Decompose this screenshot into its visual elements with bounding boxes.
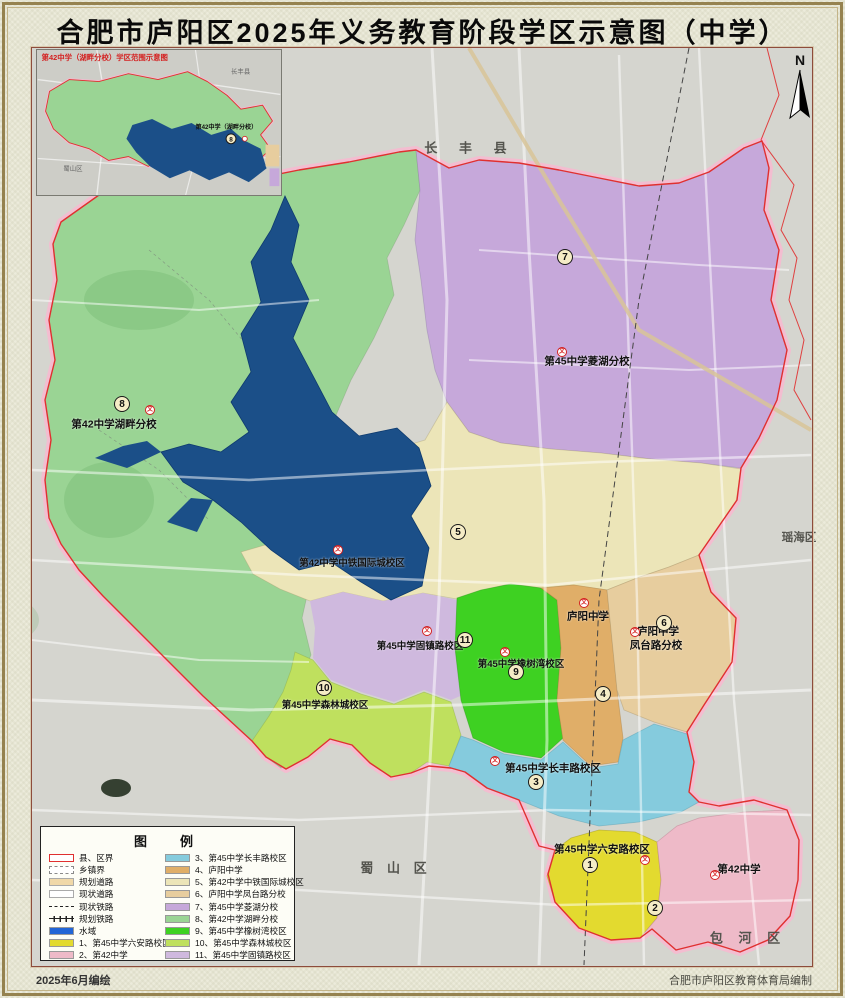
school-label-luyang: 庐阳中学 bbox=[567, 609, 609, 624]
legend: 图 例 县、区界 乡镇界 规划道路 现状道路 bbox=[40, 826, 295, 961]
legend-item-2: 2、第42中学 bbox=[49, 951, 157, 961]
footer-date: 2025年6月编绘 bbox=[36, 972, 111, 988]
region-number-5: 5 bbox=[450, 524, 466, 540]
north-arrow-icon bbox=[787, 68, 813, 120]
inset-edge-region bbox=[266, 145, 280, 167]
district-label-yaohaiqu: 瑶海区 bbox=[782, 529, 817, 545]
legend-item-7: 7、第45中学菱湖分校 bbox=[165, 902, 295, 912]
region-number-2: 2 bbox=[647, 900, 663, 916]
region-1-swatch bbox=[49, 939, 74, 947]
water-swatch bbox=[49, 927, 74, 935]
region-10-swatch bbox=[165, 939, 190, 947]
school-marker: 文 bbox=[640, 855, 650, 865]
school-marker: 文 bbox=[557, 347, 567, 357]
inset-school-marker bbox=[242, 136, 247, 141]
school-label-fengtailu-2: 凤台路分校 bbox=[630, 638, 683, 653]
inset-number: 8 bbox=[229, 136, 233, 143]
footer-publisher: 合肥市庐阳区教育体育局编制 bbox=[669, 972, 812, 988]
planned-road-swatch bbox=[49, 878, 74, 886]
district-label-baohequ: 包 河 区 bbox=[710, 928, 786, 947]
legend-item-water: 水域 bbox=[49, 926, 157, 936]
region-7-linghu bbox=[415, 141, 787, 468]
region-5-swatch bbox=[165, 878, 190, 886]
legend-column-left: 县、区界 乡镇界 规划道路 现状道路 现状铁路 bbox=[49, 853, 157, 960]
school-marker: 文 bbox=[422, 626, 432, 636]
school-label-linghu: 第45中学菱湖分校 bbox=[544, 354, 629, 369]
region-number-3: 3 bbox=[528, 774, 544, 790]
school-marker: 文 bbox=[500, 647, 510, 657]
forest-texture bbox=[84, 270, 194, 330]
legend-item-10: 10、第45中学森林城校区 bbox=[165, 938, 295, 948]
region-number-9: 9 bbox=[508, 664, 524, 680]
page: 合肥市庐阳区2025年义务教育阶段学区示意图（中学） bbox=[0, 0, 845, 998]
region-6-swatch bbox=[165, 890, 190, 898]
region-number-6: 6 bbox=[656, 615, 672, 631]
school-label-hupan: 第42中学湖畔分校 bbox=[71, 417, 156, 432]
legend-item-8: 8、第42中学湖畔分校 bbox=[165, 914, 295, 924]
region-4-swatch bbox=[165, 866, 190, 874]
planned-railway-swatch bbox=[49, 915, 74, 922]
county-boundary-swatch bbox=[49, 854, 74, 862]
school-marker: 文 bbox=[490, 756, 500, 766]
inset-edge-region bbox=[269, 168, 279, 186]
north-arrow: N bbox=[786, 52, 814, 122]
legend-title: 图 例 bbox=[49, 831, 288, 850]
legend-item-town-boundary: 乡镇界 bbox=[49, 865, 157, 875]
region-number-11: 11 bbox=[457, 632, 473, 648]
legend-item-3: 3、第45中学长丰路校区 bbox=[165, 853, 295, 863]
existing-railway-swatch bbox=[49, 906, 74, 907]
legend-item-4: 4、庐阳中学 bbox=[165, 865, 295, 875]
north-label: N bbox=[786, 52, 814, 68]
legend-item-planned-road: 规划道路 bbox=[49, 877, 157, 887]
legend-item-existing-railway: 现状铁路 bbox=[49, 902, 157, 912]
inset-map: 第42中学（湖畔分校）学区范围示意图 长丰县 蜀山区 第42中学（湖畔分校） 8 bbox=[36, 49, 282, 196]
school-marker: 文 bbox=[630, 627, 640, 637]
region-number-7: 7 bbox=[557, 249, 573, 265]
region-3-swatch bbox=[165, 854, 190, 862]
region-8-swatch bbox=[165, 915, 190, 923]
school-label-zhongtie: 第42中学中铁国际城校区 bbox=[299, 555, 405, 569]
school-marker: 文 bbox=[145, 405, 155, 415]
existing-road-swatch bbox=[49, 890, 74, 898]
region-number-10: 10 bbox=[316, 680, 332, 696]
region-number-1: 1 bbox=[582, 857, 598, 873]
school-marker: 文 bbox=[579, 598, 589, 608]
school-label-senlincheng: 第45中学森林城校区 bbox=[282, 697, 369, 711]
page-title: 合肥市庐阳区2025年义务教育阶段学区示意图（中学） bbox=[0, 11, 845, 50]
inset-district-changfeng: 长丰县 bbox=[231, 67, 251, 76]
inset-caption: 第42中学（湖畔分校）学区范围示意图 bbox=[42, 53, 168, 62]
region-2-swatch bbox=[49, 951, 74, 959]
school-label-guzhenlu: 第45中学固镇路校区 bbox=[377, 638, 464, 652]
legend-item-9: 9、第45中学橡树湾校区 bbox=[165, 926, 295, 936]
region-7-swatch bbox=[165, 903, 190, 911]
legend-item-11: 11、第45中学固镇路校区 bbox=[165, 951, 295, 961]
school-marker: 文 bbox=[333, 545, 343, 555]
region-11-swatch bbox=[165, 951, 190, 959]
school-label-no42: 第42中学 bbox=[717, 862, 760, 877]
legend-item-planned-railway: 规划铁路 bbox=[49, 914, 157, 924]
legend-item-5: 5、第42中学中铁国际城校区 bbox=[165, 877, 295, 887]
legend-item-6: 6、庐阳中学凤台路分校 bbox=[165, 890, 295, 900]
legend-item-existing-road: 现状道路 bbox=[49, 890, 157, 900]
region-number-8: 8 bbox=[114, 396, 130, 412]
legend-column-right: 3、第45中学长丰路校区 4、庐阳中学 5、第42中学中铁国际城校区 6、庐阳中… bbox=[165, 853, 295, 960]
inset-school-label: 第42中学（湖畔分校） bbox=[194, 123, 257, 131]
legend-item-county-boundary: 县、区界 bbox=[49, 853, 157, 863]
pond bbox=[101, 779, 131, 797]
school-label-changfenglu: 第45中学长丰路校区 bbox=[505, 761, 601, 776]
town-boundary-swatch bbox=[49, 866, 74, 874]
school-label-luanlu: 第45中学六安路校区 bbox=[554, 842, 650, 857]
district-label-shushanqu: 蜀 山 区 bbox=[360, 858, 431, 877]
school-marker: 文 bbox=[710, 870, 720, 880]
legend-item-1: 1、第45中学六安路校区 bbox=[49, 938, 157, 948]
region-9-swatch bbox=[165, 927, 190, 935]
district-label-changfengxian: 长 丰 县 bbox=[424, 138, 515, 157]
region-number-4: 4 bbox=[595, 686, 611, 702]
inset-district-shushan: 蜀山区 bbox=[63, 163, 83, 172]
